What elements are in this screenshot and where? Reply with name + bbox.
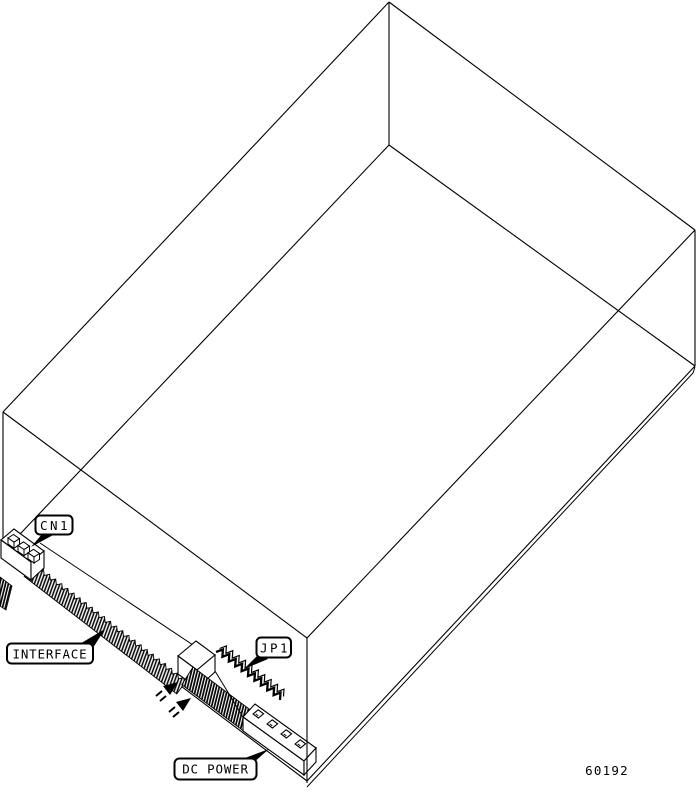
callout-interface: INTERFACE xyxy=(7,629,105,664)
callout-jp1: JP1 xyxy=(244,638,291,670)
box-edge xyxy=(389,145,695,366)
pin1-arrow-icon xyxy=(176,698,191,711)
callout-cn1: CN1 xyxy=(31,516,73,548)
callout-interface-label: INTERFACE xyxy=(13,647,88,662)
callout-dc-power-label: DC POWER xyxy=(182,762,249,777)
pcb-corner-hatch xyxy=(0,577,12,610)
cn1-connector xyxy=(1,529,44,580)
box-edge xyxy=(307,366,695,781)
box-edge xyxy=(3,2,389,412)
drive-outline xyxy=(3,2,695,787)
callout-dc-power: DC POWER xyxy=(175,749,270,780)
callout-cn1-label: CN1 xyxy=(40,518,70,533)
pin1-arrow-tail xyxy=(169,707,179,717)
pin1-arrow-tail xyxy=(156,691,166,701)
box-edge xyxy=(3,145,389,552)
box-edge xyxy=(389,2,695,230)
callout-jp1-label: JP1 xyxy=(260,641,290,656)
technical-drawing: CN1 INTERFACE JP1 DC POWER 60192 xyxy=(0,0,696,793)
figure-canvas: CN1 INTERFACE JP1 DC POWER 60192 xyxy=(0,0,696,793)
part-number-text: 60192 xyxy=(585,763,629,778)
